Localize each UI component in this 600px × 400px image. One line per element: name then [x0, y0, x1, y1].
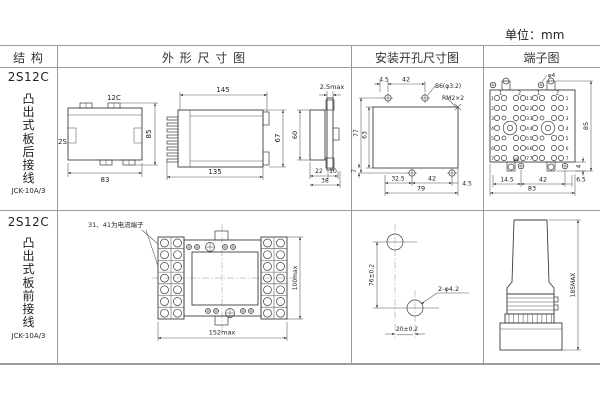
- svg-text:7: 7: [530, 156, 533, 162]
- svg-text:2: 2: [518, 91, 521, 97]
- dim-d1: 22: [315, 168, 323, 175]
- dim-b1: 14.5: [500, 177, 514, 184]
- dim-offset: 4: [576, 164, 583, 168]
- svg-text:1: 1: [491, 96, 494, 102]
- svg-text:5: 5: [530, 136, 533, 142]
- svg-text:6: 6: [530, 146, 533, 152]
- dim-horizontal: 20±0.2: [396, 326, 418, 333]
- header-terminal: 端子图: [483, 49, 600, 66]
- code-row1: JCK-10A/3: [0, 187, 57, 195]
- dim-flange-thickness: 2.5max: [320, 83, 345, 91]
- svg-text:1: 1: [530, 96, 533, 102]
- svg-text:4: 4: [530, 126, 533, 132]
- dim-height: 100max: [292, 265, 299, 290]
- dim-t2: 42: [402, 76, 410, 84]
- current-terminal-note: 31、41为电流端子: [88, 220, 144, 229]
- dim-d3: 38: [321, 178, 329, 185]
- terminal-column-numbers: 1 2 1 2: [499, 91, 559, 97]
- svg-text:3: 3: [566, 116, 569, 122]
- dim-b0: 7: [351, 169, 358, 173]
- header-mounting: 安装开孔尺寸图: [351, 49, 483, 66]
- dim-b1: 32.5: [391, 176, 405, 183]
- front-view: 152max 100max: [158, 231, 303, 341]
- svg-text:1: 1: [499, 91, 502, 97]
- model-row1: 2S12C: [0, 70, 57, 84]
- outline-drawing-rear-wiring: 12C 2S 83 85 145: [57, 67, 351, 210]
- panel-cutout: 4.5 42 B6(φ3.2) RM2×2 77 63 7 32.5 42 4.…: [351, 76, 472, 197]
- svg-text:6: 6: [566, 146, 569, 152]
- top-view: 12C 2S 83 85: [58, 94, 158, 184]
- dim-width: 152max: [209, 329, 236, 337]
- dim-depth-bottom: 135: [208, 168, 221, 176]
- svg-text:3: 3: [491, 116, 494, 122]
- dim-depth-top: 145: [216, 86, 229, 94]
- drilling-plan-front: 76±0.2 2-φ4.2 20±0.2: [351, 210, 483, 363]
- header-structure: 结 构: [0, 49, 57, 66]
- side-view: 145 135 67: [167, 86, 286, 180]
- svg-text:1: 1: [537, 91, 540, 97]
- dim-total: 79: [417, 185, 425, 193]
- svg-text:2: 2: [530, 106, 533, 112]
- dim-b3: 4.5: [462, 181, 472, 188]
- dim-vertical: 76±0.2: [369, 264, 376, 286]
- end-view: 2.5max 60 22 10 38: [291, 83, 344, 188]
- svg-text:2: 2: [491, 106, 494, 112]
- header-outline: 外 形 尺 寸 图: [57, 49, 351, 66]
- drill-holes: 76±0.2 2-φ4.2 20±0.2: [369, 224, 470, 338]
- svg-text:2: 2: [556, 91, 559, 97]
- svg-text:2: 2: [566, 106, 569, 112]
- dim-total: 83: [528, 185, 536, 193]
- terminal-plate: φ4 φ8: [490, 73, 593, 196]
- svg-text:6: 6: [491, 146, 494, 152]
- table-border-top: [0, 45, 600, 46]
- dim-b2: 42: [539, 176, 547, 184]
- label-2s: 2S: [58, 138, 67, 146]
- svg-text:3: 3: [530, 116, 533, 122]
- dim-height: 85: [145, 130, 153, 139]
- dim-total-height: 185MAX: [570, 273, 577, 298]
- outline-drawing-front-wiring: 31、41为电流端子: [57, 210, 351, 363]
- mount-type-row1: 凸出式板后接线: [0, 93, 57, 185]
- mounting-hole-drawing-rear: 4.5 42 B6(φ3.2) RM2×2 77 63 7 32.5 42 4.…: [351, 67, 483, 210]
- hole-count-label: 2-φ4.2: [438, 285, 459, 293]
- svg-text:7: 7: [491, 156, 494, 162]
- mount-type-row2: 凸出式板前接线: [0, 237, 57, 329]
- dim-b2: 42: [428, 175, 436, 183]
- svg-text:5: 5: [566, 136, 569, 142]
- unit-label: 单位：mm: [505, 26, 595, 43]
- dim-t1: 4.5: [379, 77, 389, 84]
- dim-h1: 77: [353, 129, 360, 137]
- hole-spec-label: B6(φ3.2): [435, 83, 461, 90]
- dim-h2: 63: [362, 131, 369, 139]
- side-silhouette-front: 185MAX: [483, 210, 600, 363]
- dim-body-height: 67: [274, 134, 282, 143]
- dim-width: 83: [101, 176, 110, 184]
- relay-silhouette: 185MAX: [500, 220, 581, 350]
- svg-text:4: 4: [566, 126, 569, 132]
- dim-b3: 6.5: [576, 177, 586, 184]
- relay-dimension-sheet: 单位：mm 结 构 外 形 尺 寸 图 安装开孔尺寸图 端子图 2S12C 凸出…: [0, 0, 600, 400]
- svg-text:7: 7: [566, 156, 569, 162]
- svg-text:4: 4: [491, 126, 494, 132]
- screw-top-label: φ4: [548, 73, 556, 79]
- screw-spec-label: RM2×2: [442, 95, 464, 102]
- code-row2: JCK-10A/3: [0, 332, 57, 340]
- label-12c: 12C: [107, 94, 121, 102]
- terminal-diagram-rear: φ4 φ8: [483, 67, 600, 210]
- screws: [187, 243, 254, 318]
- svg-text:1: 1: [566, 96, 569, 102]
- dim-d2: 10: [329, 168, 337, 175]
- model-row2: 2S12C: [0, 215, 57, 229]
- table-border-bottom: [0, 363, 600, 365]
- dim-plate-height: 85: [582, 122, 590, 130]
- dim-end-height: 60: [291, 131, 299, 139]
- svg-text:5: 5: [491, 136, 494, 142]
